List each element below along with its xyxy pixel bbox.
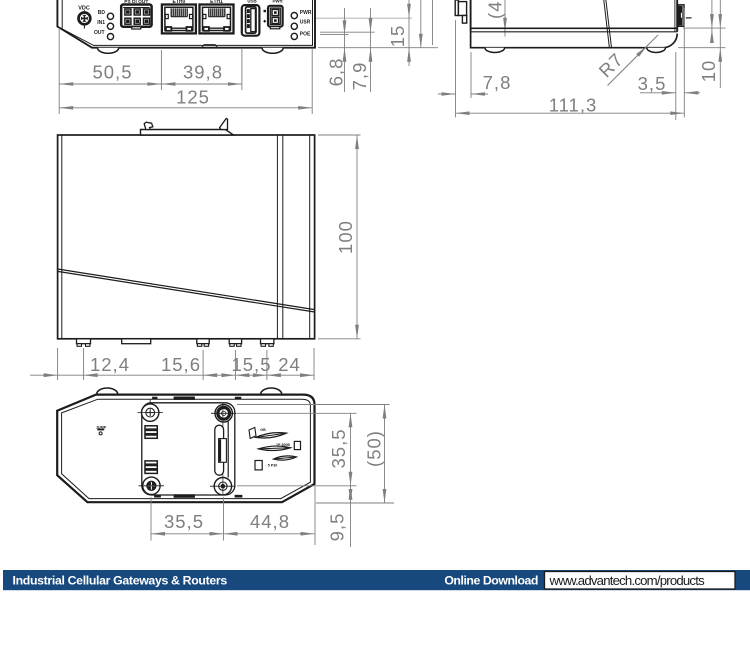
- svg-text:Online Download: Online Download: [444, 574, 538, 588]
- svg-text:PWR: PWR: [272, 0, 283, 4]
- svg-text:125: 125: [176, 87, 210, 108]
- svg-text:www.advantech.com/products: www.advantech.com/products: [549, 573, 706, 588]
- svg-text:ETH0: ETH0: [173, 0, 186, 5]
- svg-text:6,8: 6,8: [326, 58, 347, 87]
- svg-text:15: 15: [387, 25, 408, 48]
- svg-text:IN1: IN1: [97, 20, 105, 26]
- svg-text:3,5: 3,5: [638, 73, 667, 94]
- svg-text:15,6: 15,6: [161, 354, 201, 375]
- svg-text:44,8: 44,8: [250, 511, 290, 532]
- svg-text:35,5: 35,5: [164, 511, 204, 532]
- svg-text:OUT: OUT: [94, 30, 105, 36]
- svg-text:7,8: 7,8: [483, 72, 512, 93]
- svg-text:GB: GB: [260, 428, 266, 432]
- svg-text:USR: USR: [300, 20, 311, 26]
- svg-text:35,5: 35,5: [328, 428, 349, 468]
- svg-text:(45): (45): [485, 0, 506, 19]
- svg-text:5 P30: 5 P30: [268, 463, 277, 467]
- svg-text:50,5: 50,5: [92, 61, 132, 82]
- svg-text:R7: R7: [595, 49, 628, 82]
- svg-text:24: 24: [278, 354, 301, 375]
- svg-text:9,5: 9,5: [327, 513, 348, 542]
- svg-text:PS DI OUT: PS DI OUT: [124, 0, 148, 5]
- svg-text:111,3: 111,3: [549, 95, 598, 116]
- svg-text:POE: POE: [300, 32, 311, 38]
- svg-text:1P 300B: 1P 300B: [276, 443, 290, 447]
- svg-text:(50): (50): [364, 430, 385, 467]
- svg-text:39,8: 39,8: [183, 61, 223, 82]
- svg-text:10: 10: [698, 60, 719, 83]
- svg-text:USB: USB: [247, 0, 256, 4]
- svg-text:PWR: PWR: [300, 10, 312, 16]
- svg-text:Industrial Cellular Gateways &: Industrial Cellular Gateways & Routers: [13, 574, 228, 588]
- svg-text:ETH1: ETH1: [210, 0, 223, 5]
- svg-text:12,4: 12,4: [90, 354, 130, 375]
- svg-text:100: 100: [335, 220, 356, 254]
- svg-text:15,5: 15,5: [231, 354, 271, 375]
- svg-text:BD: BD: [98, 10, 106, 16]
- svg-text:VDC: VDC: [78, 6, 90, 12]
- svg-text:7,9: 7,9: [349, 62, 370, 91]
